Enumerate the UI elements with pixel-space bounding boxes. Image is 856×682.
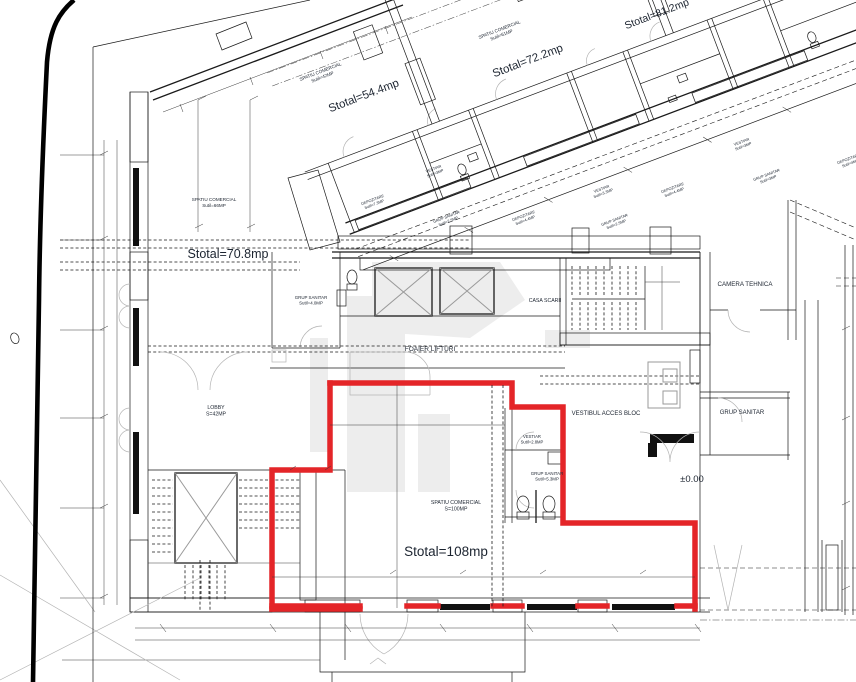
- room-spatiu-comercial-108: SPATIU COMERCIALS=100MP: [431, 500, 481, 513]
- room-vestibul-acces-bloc: VESTIBUL ACCES BLOC: [572, 411, 641, 417]
- room-vestiar-parter: VESTIARSutil=2.8MP: [521, 434, 544, 444]
- east-rooms: [640, 200, 796, 612]
- rotated-wing: [0, 0, 856, 399]
- area-stotal-81: Stotal=81.2mp: [623, 0, 691, 32]
- level-marker: ±0.00: [680, 474, 704, 485]
- room-vestiar-3: VESTIARSutil=3MP: [733, 137, 753, 152]
- room-depozitare-4: DEPOZITARESutil=4MP: [837, 153, 856, 170]
- area-stotal-72: Stotal=72.2mp: [491, 42, 565, 80]
- area-stotal-108: Stotal=108mp: [404, 544, 488, 559]
- room-grup-sanitar-lift: GRUP SANITARSutil=4.0MP: [295, 295, 328, 306]
- labels-layer: SPATIU COMERCIALSutil=42MPStotal=54.4mpS…: [188, 0, 856, 559]
- room-spatiu-comercial-72: SPATIU COMERCIALSutil=61MP: [478, 19, 524, 45]
- staircase-lower: [148, 470, 345, 612]
- room-casa-scarii: CASA SCARII: [529, 298, 562, 304]
- room-grup-sanitar-3: GRUP SANITARSutil=3MP: [753, 168, 783, 186]
- area-stotal-70: Stotal=70.8mp: [188, 247, 269, 261]
- room-spatiu-comercial-70: SPATIU COMERCIALSutil=66MP: [192, 197, 237, 208]
- room-grup-sanitar-2: GRUP SANITARSutil=2.5MP: [601, 213, 631, 231]
- area-stotal-54: Stotal=54.4mp: [327, 77, 401, 115]
- terrace-diagonals: [0, 480, 200, 680]
- room-lobby: LOBBYS=42MP: [206, 405, 227, 418]
- room-spatiu-comercial-54: SPATIU COMERCIALSutil=42MP: [299, 61, 345, 87]
- core-top-wall: [288, 170, 700, 254]
- site-boundary: [33, 0, 310, 682]
- vestibul-grid-dashes: [540, 376, 700, 384]
- floor-plan-canvas: SPATIU COMERCIALSutil=42MPStotal=54.4mpS…: [0, 0, 856, 682]
- room-camera-tehnica: CAMERA TEHNICA: [718, 281, 774, 288]
- room-depozitare-3: DEPOZITARESutil=4.4MP: [661, 182, 687, 199]
- west-facade-wall: [119, 92, 148, 612]
- parter-sanitary-block: [505, 408, 563, 523]
- room-depozitare-1: DEPOZITARESutil=7.3MP: [361, 194, 387, 211]
- floor-plan-drawing: SPATIU COMERCIALSutil=42MPStotal=54.4mpS…: [0, 0, 856, 682]
- room-grup-sanitar-right: GRUP SANITAR: [720, 410, 765, 416]
- room-vestiar-2: VESTIARSutil=3.3MP: [591, 183, 614, 199]
- room-foaier-lifturi: FOAIER LIFTURI: [405, 346, 456, 353]
- room-grup-sanitar-parter: GRUP SANITARSutil=5.3MP: [531, 471, 564, 482]
